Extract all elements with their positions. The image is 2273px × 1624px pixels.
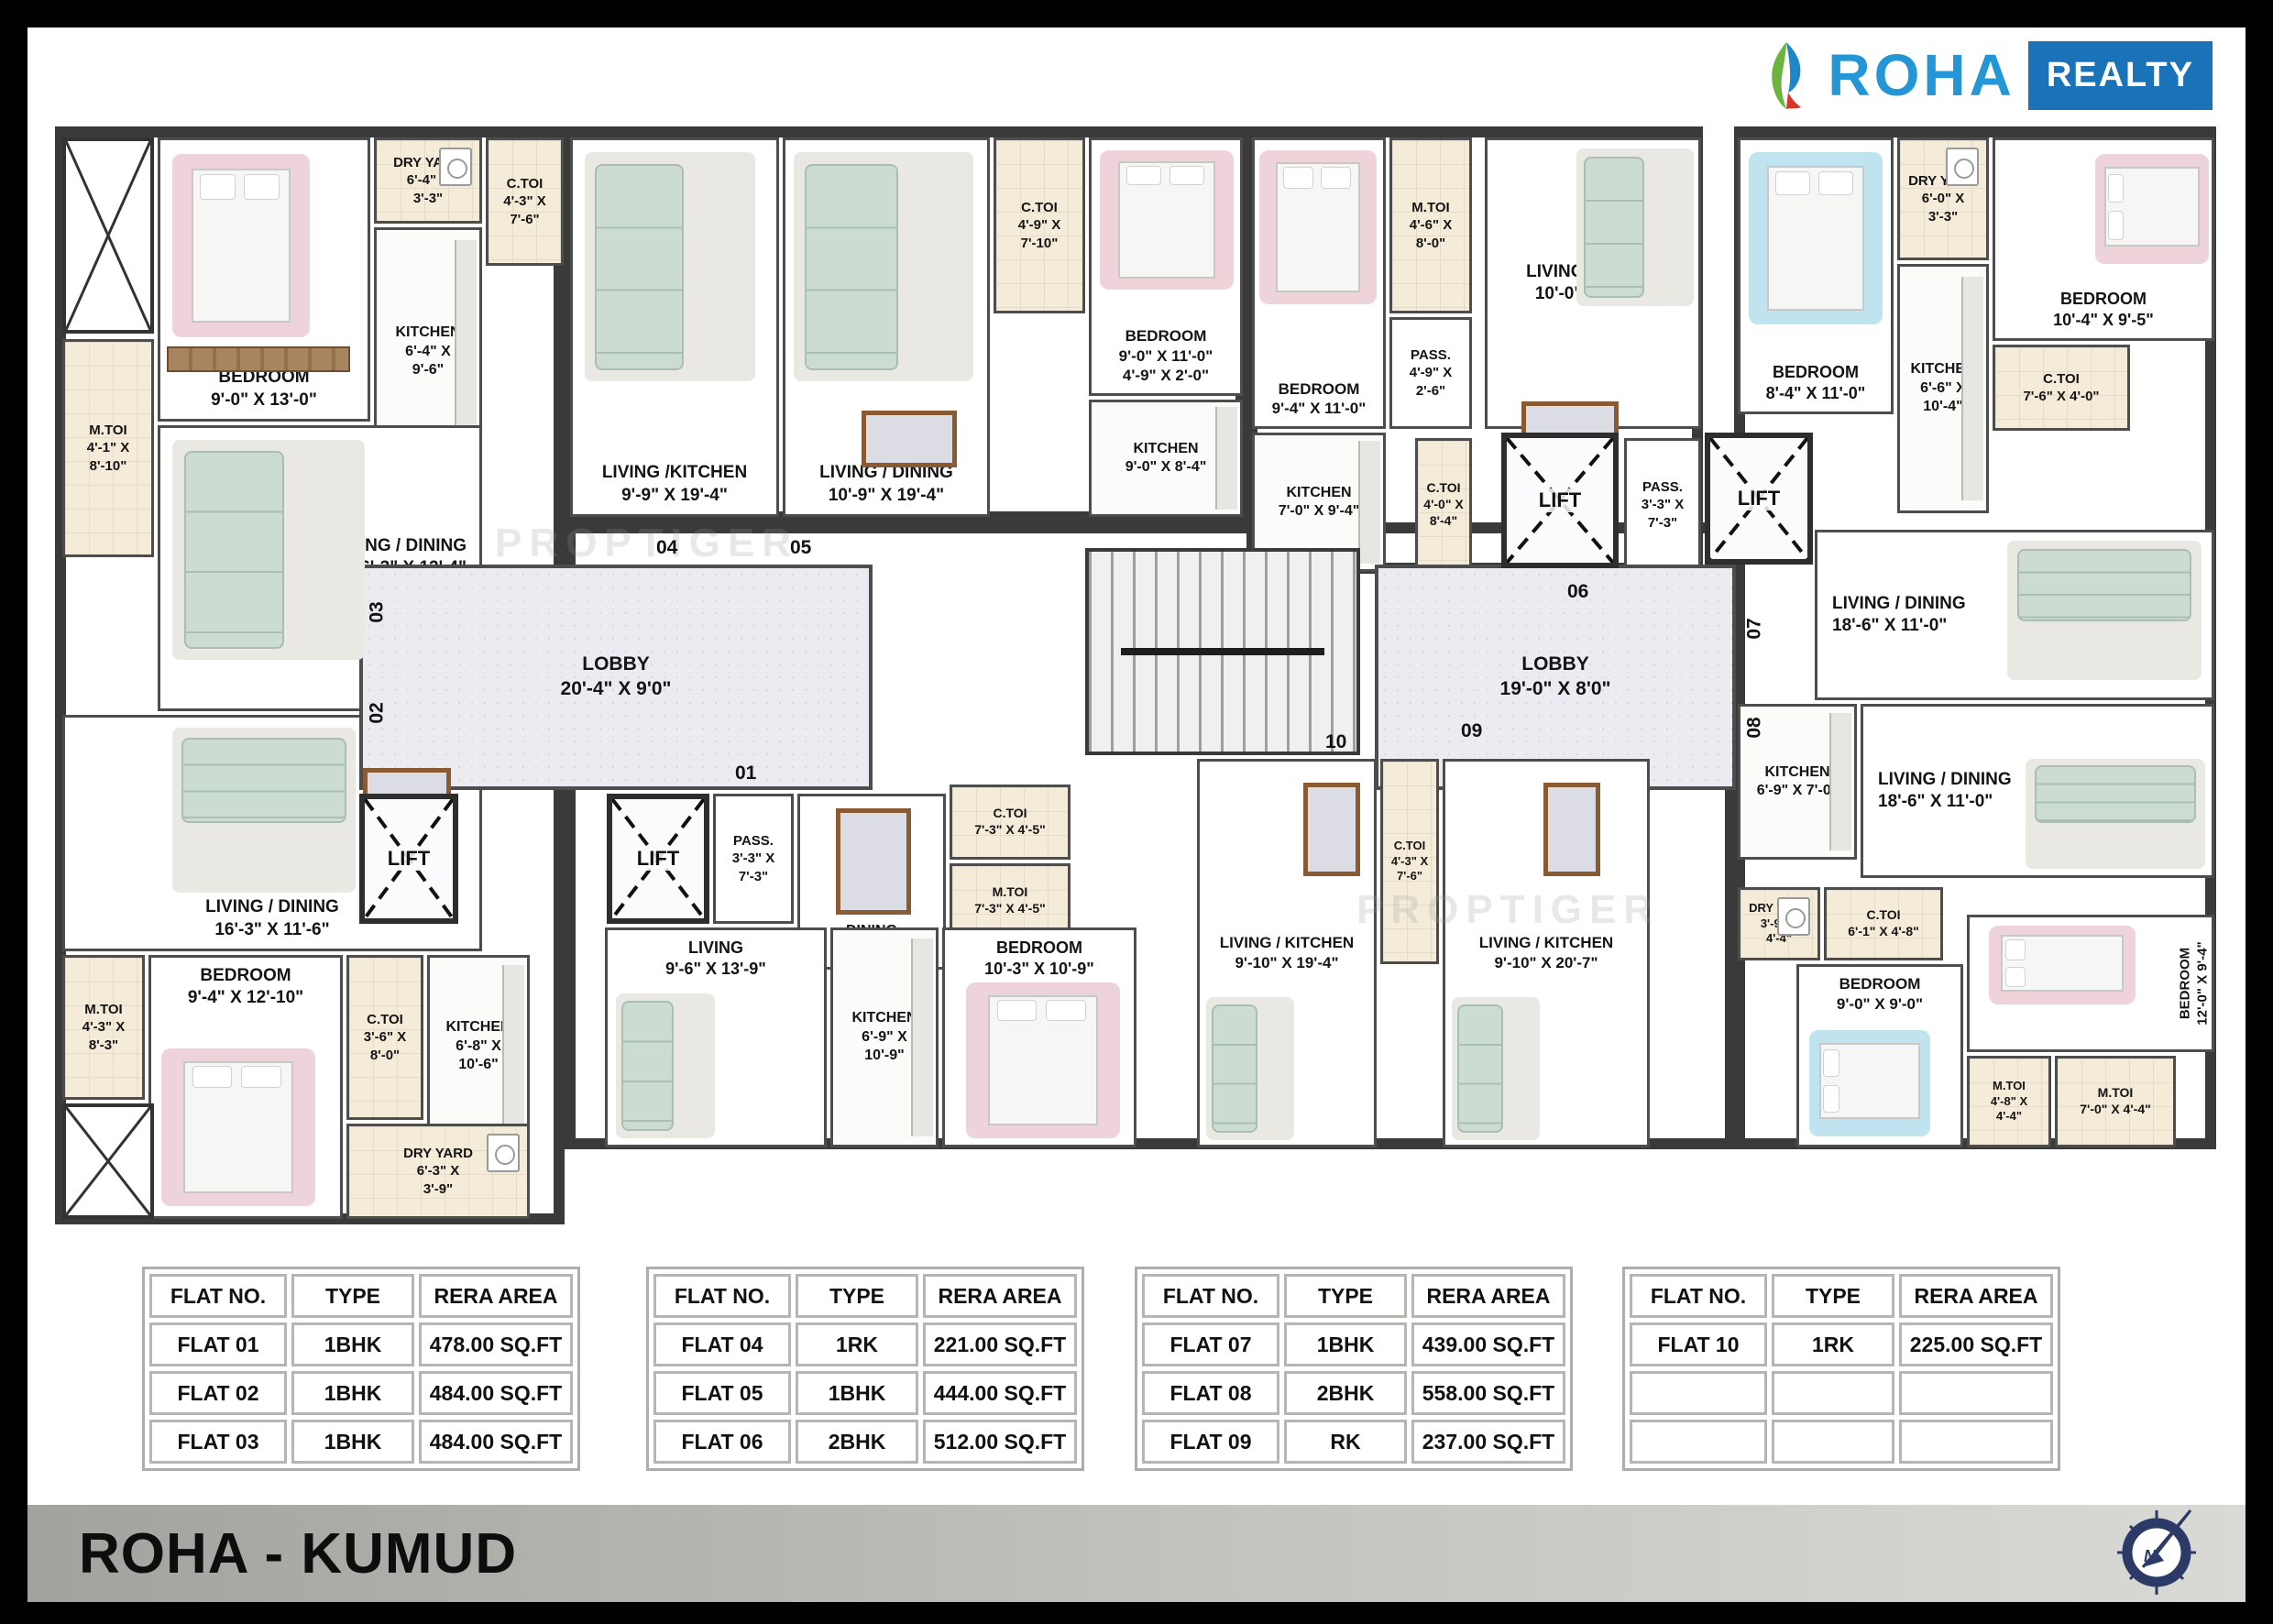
dining-table-icon (1303, 783, 1360, 876)
table-row: FLAT 101RK225.00 SQ.FT (1630, 1322, 2053, 1366)
washing-machine-icon (1777, 897, 1810, 936)
room-label: LIVING9'-6" X 13'-9" (664, 930, 768, 982)
table-header: TYPE (1284, 1274, 1407, 1318)
room-label: LIVING / DINING16'-3" X 11'-6" (203, 894, 341, 949)
room-pass: PASS.3'-3" X7'-3" (713, 794, 794, 924)
kitchen-counter (911, 938, 933, 1136)
brand-logo: ROHA REALTY (1758, 38, 2213, 112)
table-cell: 237.00 SQ.FT (1411, 1420, 1565, 1464)
dining-table-icon (836, 808, 911, 915)
table-cell: 478.00 SQ.FT (419, 1322, 573, 1366)
flat-number-09: 09 (1461, 720, 1482, 742)
duct-shaft (62, 137, 154, 334)
floor-plan: PROPTIGER PROPTIGER M.TOI4'-1" X8'-10"BE… (55, 126, 2218, 1226)
dining-table-icon (1543, 783, 1600, 876)
room-label: KITCHEN6'-4" X9'-6" (393, 322, 462, 381)
flat-number-08: 08 (1744, 717, 1766, 738)
bed-icon (1809, 1030, 1930, 1136)
north-compass-icon: N (2106, 1505, 2207, 1600)
page-frame: ROHA REALTY PROPTIGER PROPTIGER M.TOI4'-… (27, 27, 2246, 1602)
sofa-icon (2026, 759, 2205, 869)
room-c-toi: C.TOI6'-1" X 4'-8" (1824, 887, 1943, 960)
table-row: FLAT 082BHK558.00 SQ.FT (1142, 1371, 1565, 1415)
kitchen-counter (1961, 277, 1983, 501)
table-cell (1630, 1420, 1767, 1464)
bed-icon (1749, 152, 1883, 324)
room-label: M.TOI4'-1" X8'-10" (85, 420, 132, 477)
sofa-icon (1576, 148, 1694, 306)
table-cell: 484.00 SQ.FT (419, 1371, 573, 1415)
room-kitchen: KITCHEN9'-0" X 8'-4" (1089, 400, 1243, 517)
table-cell: FLAT 03 (149, 1420, 287, 1464)
flat-number-04: 04 (656, 537, 677, 559)
table-cell (1772, 1420, 1894, 1464)
room-label: C.TOI7'-3" X 4'-5" (972, 804, 1048, 840)
table-row: FLAT 031BHK484.00 SQ.FT (149, 1420, 573, 1464)
table-cell: 512.00 SQ.FT (923, 1420, 1077, 1464)
brand-suffix-badge: REALTY (2028, 41, 2213, 110)
table-cell: 1BHK (1284, 1322, 1407, 1366)
washing-machine-icon (1946, 148, 1979, 186)
room-label: KITCHEN9'-0" X 8'-4" (1124, 438, 1209, 479)
room-label: PASS.3'-3" X7'-3" (1640, 477, 1686, 533)
table-cell: 225.00 SQ.FT (1899, 1322, 2053, 1366)
table-cell: 1BHK (291, 1420, 414, 1464)
room-label: C.TOI7'-6" X 4'-0" (2021, 368, 2101, 407)
room-label: M.TOI7'-0" X 4'-4" (2078, 1083, 2153, 1120)
table-header: RERA AREA (1899, 1274, 2053, 1318)
table-cell: 1BHK (291, 1371, 414, 1415)
room-m-toi: M.TOI7'-0" X 4'-4" (2055, 1056, 2176, 1147)
flat-number-06: 06 (1567, 581, 1588, 603)
room-dry-yard: DRY YARD6'-3" X3'-9" (346, 1124, 530, 1219)
washing-machine-icon (439, 148, 472, 186)
room-label: BEDROOM9'-4" X 12'-10" (186, 958, 305, 1012)
bed-icon (172, 154, 310, 337)
lift-label: LIFT (1534, 488, 1586, 512)
room-kitchen: KITCHEN6'-8" X10'-6" (427, 955, 530, 1138)
bed-icon (1100, 150, 1234, 290)
kitchen-counter (1215, 407, 1237, 510)
room-label: PASS.4'-9" X2'-6" (1408, 345, 1455, 401)
table-row: FLAT 09RK237.00 SQ.FT (1142, 1420, 1565, 1464)
table-cell: 2BHK (1284, 1371, 1407, 1415)
room-label: BEDROOM10'-4" X 9'-5" (2051, 287, 2156, 338)
sofa-icon (172, 440, 365, 660)
room-label: M.TOI4'-6" X8'-0" (1408, 197, 1455, 254)
flat-table-2: FLAT NO.TYPERERA AREAFLAT 041RK221.00 SQ… (646, 1267, 1084, 1471)
table-row: FLAT 021BHK484.00 SQ.FT (149, 1371, 573, 1415)
table-cell: 444.00 SQ.FT (923, 1371, 1077, 1415)
brand-name: ROHA (1828, 41, 2015, 109)
room-label: BEDROOM9'-0" X 13'-0" (209, 365, 319, 419)
room-pass: PASS.3'-3" X7'-3" (1624, 438, 1701, 572)
footer-banner: ROHA - KUMUD N (27, 1505, 2246, 1602)
room-lobby: LOBBY20'-4" X 9'0" (359, 565, 873, 790)
table-cell: FLAT 04 (653, 1322, 791, 1366)
room-label: LOBBY20'-4" X 9'0" (559, 651, 674, 704)
table-cell: 439.00 SQ.FT (1411, 1322, 1565, 1366)
table-row: FLAT 062BHK512.00 SQ.FT (653, 1420, 1077, 1464)
washing-machine-icon (487, 1134, 520, 1172)
room-label: KITCHEN6'-9" X10'-9" (850, 1007, 918, 1067)
table-cell: FLAT 09 (1142, 1420, 1279, 1464)
room-label: C.TOI4'-0" X8'-4" (1422, 478, 1465, 532)
lift-shaft: LIFT (607, 794, 709, 924)
sofa-icon (2007, 541, 2202, 680)
table-cell (1630, 1371, 1767, 1415)
table-header: TYPE (796, 1274, 918, 1318)
table-cell: 2BHK (796, 1420, 918, 1464)
flat-number-01: 01 (735, 763, 756, 785)
table-row (1630, 1371, 2053, 1415)
table-row: FLAT 071BHK439.00 SQ.FT (1142, 1322, 1565, 1366)
room-label: BEDROOM9'-0" X 11'-0"4'-9" X 2'-0" (1117, 324, 1215, 393)
room-lobby: LOBBY19'-0" X 8'0" (1375, 565, 1736, 790)
lift-label: LIFT (383, 847, 434, 871)
table-row: FLAT 011BHK478.00 SQ.FT (149, 1322, 573, 1366)
room-m-toi: M.TOI4'-1" X8'-10" (62, 339, 154, 557)
table-cell: 558.00 SQ.FT (1411, 1371, 1565, 1415)
room-c-toi: C.TOI4'-9" X7'-10" (994, 137, 1085, 313)
room-label: DRY YARD6'-3" X3'-9" (401, 1143, 475, 1200)
table-cell: FLAT 05 (653, 1371, 791, 1415)
room-label: C.TOI4'-9" X7'-10" (1016, 197, 1063, 254)
table-header: FLAT NO. (149, 1274, 287, 1318)
sofa-icon (1206, 997, 1294, 1140)
flat-number-07: 07 (1744, 618, 1766, 639)
table-header: RERA AREA (419, 1274, 573, 1318)
staircase (1085, 548, 1360, 755)
room-m-toi: M.TOI4'-8" X4'-4" (1967, 1056, 2051, 1147)
room-label: LIVING / KITCHEN9'-10" X 19'-4" (1218, 931, 1356, 975)
flat-number-03: 03 (367, 601, 389, 622)
room-label: C.TOI4'-3" X7'-6" (1389, 837, 1430, 886)
room-dry-yard: DRY YARD6'-4" X3'-3" (374, 137, 482, 224)
room-label: LIVING /KITCHEN9'-9" X 19'-4" (600, 460, 749, 514)
room-label: BEDROOM8'-4" X 11'-0" (1764, 360, 1868, 411)
project-title: ROHA - KUMUD (27, 1521, 517, 1586)
table-cell: FLAT 10 (1630, 1322, 1767, 1366)
duct-shaft (62, 1103, 154, 1219)
kitchen-counter (502, 965, 524, 1128)
table-cell: 1BHK (796, 1371, 918, 1415)
flat-table-3: FLAT NO.TYPERERA AREAFLAT 071BHK439.00 S… (1135, 1267, 1573, 1471)
table-cell: 1RK (796, 1322, 918, 1366)
table-header: RERA AREA (923, 1274, 1077, 1318)
room-label: BEDROOM12'-0" X 9'-4" (2174, 939, 2213, 1026)
room-c-toi: C.TOI4'-3" X7'-6" (1380, 759, 1439, 964)
sofa-icon (616, 993, 715, 1138)
flat-number-02: 02 (367, 702, 389, 723)
flat-area-tables: FLAT NO.TYPERERA AREAFLAT 011BHK478.00 S… (27, 1267, 2246, 1487)
room-label: M.TOI4'-3" X8'-3" (81, 999, 127, 1056)
room-label: KITCHEN6'-9" X 7'-0" (1755, 762, 1840, 803)
table-cell: RK (1284, 1420, 1407, 1464)
room-label: BEDROOM9'-4" X 11'-0" (1270, 378, 1368, 427)
room-c-toi: C.TOI4'-3" X7'-6" (486, 137, 564, 266)
room-label: LIVING / DINING10'-9" X 19'-4" (818, 460, 955, 514)
table-header: RERA AREA (1411, 1274, 1565, 1318)
wardrobe-icon (167, 346, 350, 372)
flat-table-4: FLAT NO.TYPERERA AREAFLAT 101RK225.00 SQ… (1622, 1267, 2060, 1471)
roha-ribbon-icon (1758, 38, 1815, 112)
lift-shaft: LIFT (359, 794, 458, 924)
bed-icon (1259, 150, 1377, 304)
table-cell: FLAT 06 (653, 1420, 791, 1464)
room-m-toi: M.TOI4'-6" X8'-0" (1389, 137, 1472, 313)
room-label: M.TOI7'-3" X 4'-5" (972, 883, 1048, 919)
room-label: BEDROOM9'-0" X 9'-0" (1835, 967, 1925, 1016)
room-label: C.TOI6'-1" X 4'-8" (1846, 905, 1921, 942)
north-letter: N (2144, 1547, 2157, 1565)
room-label: LIVING / DINING18'-6" X 11'-0" (1817, 591, 1968, 640)
table-header: TYPE (291, 1274, 414, 1318)
room-label: C.TOI3'-6" X8'-0" (362, 1009, 409, 1066)
table-row (1630, 1420, 2053, 1464)
table-header: FLAT NO. (1142, 1274, 1279, 1318)
kitchen-counter (1358, 441, 1380, 564)
room-label: KITCHEN7'-0" X 9'-4" (1277, 482, 1362, 523)
room-c-toi: C.TOI4'-0" X8'-4" (1415, 438, 1472, 572)
room-dry-yard: DRY YARD6'-0" X3'-3" (1897, 137, 1989, 260)
room-kitchen: KITCHEN6'-6" X10'-4" (1897, 264, 1989, 513)
lift-shaft: LIFT (1501, 433, 1619, 568)
bed-icon (1989, 926, 2136, 1004)
dining-table-icon (862, 411, 957, 467)
bed-icon (161, 1048, 315, 1206)
room-label: LIVING / DINING18'-6" X 11'-0" (1863, 767, 2014, 816)
table-cell: 1RK (1772, 1322, 1894, 1366)
room-kitchen: KITCHEN6'-9" X10'-9" (830, 927, 939, 1147)
room-c-toi: C.TOI7'-3" X 4'-5" (950, 785, 1071, 860)
table-cell (1899, 1371, 2053, 1415)
flat-number-10: 10 (1325, 731, 1346, 753)
kitchen-counter (1829, 713, 1851, 851)
table-cell: FLAT 01 (149, 1322, 287, 1366)
lift-label: LIFT (632, 847, 684, 871)
sofa-icon (1452, 997, 1540, 1140)
flat-number-05: 05 (790, 537, 811, 559)
table-cell: 221.00 SQ.FT (923, 1322, 1077, 1366)
sofa-icon (585, 152, 755, 381)
room-label: LIVING / KITCHEN9'-10" X 20'-7" (1477, 931, 1615, 975)
room-label: C.TOI4'-3" X7'-6" (501, 173, 548, 230)
table-cell: 1BHK (291, 1322, 414, 1366)
table-cell (1772, 1371, 1894, 1415)
table-cell: FLAT 02 (149, 1371, 287, 1415)
room-pass: PASS.4'-9" X2'-6" (1389, 317, 1472, 429)
bed-icon (2095, 154, 2209, 264)
table-header: FLAT NO. (1630, 1274, 1767, 1318)
room-label: BEDROOM10'-3" X 10'-9" (983, 930, 1096, 982)
table-cell: FLAT 08 (1142, 1371, 1279, 1415)
table-cell: 484.00 SQ.FT (419, 1420, 573, 1464)
room-label: PASS.3'-3" X7'-3" (730, 830, 777, 887)
room-m-toi: M.TOI4'-3" X8'-3" (62, 955, 145, 1100)
room-label: LOBBY19'-0" X 8'0" (1499, 651, 1613, 704)
table-cell: FLAT 07 (1142, 1322, 1279, 1366)
room-c-toi: C.TOI3'-6" X8'-0" (346, 955, 423, 1120)
table-cell (1899, 1420, 2053, 1464)
table-row: FLAT 051BHK444.00 SQ.FT (653, 1371, 1077, 1415)
bed-icon (966, 982, 1120, 1138)
room-dry-yard: DRY YARD3'-9" X4'-4" (1738, 887, 1820, 960)
lift-label: LIFT (1733, 487, 1784, 510)
flat-table-1: FLAT NO.TYPERERA AREAFLAT 011BHK478.00 S… (142, 1267, 580, 1471)
sofa-icon (794, 152, 973, 381)
table-header: FLAT NO. (653, 1274, 791, 1318)
sofa-icon (172, 728, 356, 893)
room-c-toi: C.TOI7'-6" X 4'-0" (1993, 345, 2130, 431)
table-row: FLAT 041RK221.00 SQ.FT (653, 1322, 1077, 1366)
table-header: TYPE (1772, 1274, 1894, 1318)
room-label: M.TOI4'-8" X4'-4" (1989, 1077, 2029, 1126)
lift-shaft: LIFT (1705, 433, 1813, 565)
